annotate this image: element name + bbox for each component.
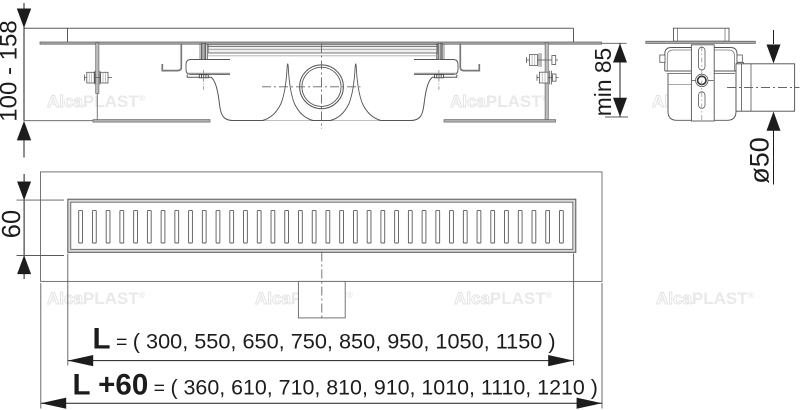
svg-text:ø50: ø50 (745, 137, 775, 184)
svg-text:60: 60 (0, 210, 26, 238)
svg-text:min 85: min 85 (590, 48, 616, 116)
svg-text:AlcaPLAST®: AlcaPLAST® (47, 289, 146, 308)
svg-text:AlcaPLAST®: AlcaPLAST® (450, 92, 549, 111)
svg-text:AlcaPLAST®: AlcaPLAST® (454, 289, 553, 308)
svg-text:AlcaPLAST®: AlcaPLAST® (656, 289, 755, 308)
svg-text:100 - 158: 100 - 158 (0, 20, 23, 121)
svg-text:AlcaPLAST®: AlcaPLAST® (47, 92, 146, 111)
